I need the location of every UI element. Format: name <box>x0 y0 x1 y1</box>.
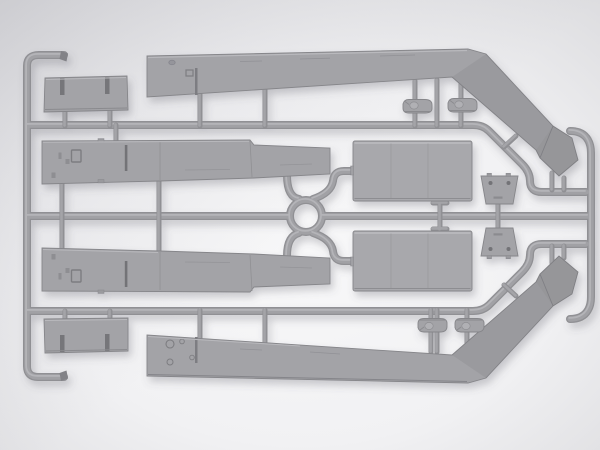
part-roof-panel-top <box>44 76 128 112</box>
sprue-photo-canvas <box>0 0 600 450</box>
part-hatch-small-top-left <box>403 100 432 114</box>
part-roof-panel-bottom <box>44 318 128 353</box>
part-deck-panel-upper <box>351 141 472 201</box>
part-bracket-upper <box>481 173 518 204</box>
part-hatch-small-top-right <box>448 99 477 113</box>
part-bracket-lower <box>481 228 518 259</box>
part-hatch-small-bottom-left <box>418 319 447 333</box>
part-hatch-small-bottom-right <box>455 319 484 333</box>
sprue-photo <box>0 0 600 450</box>
part-deck-panel-lower <box>351 231 472 291</box>
